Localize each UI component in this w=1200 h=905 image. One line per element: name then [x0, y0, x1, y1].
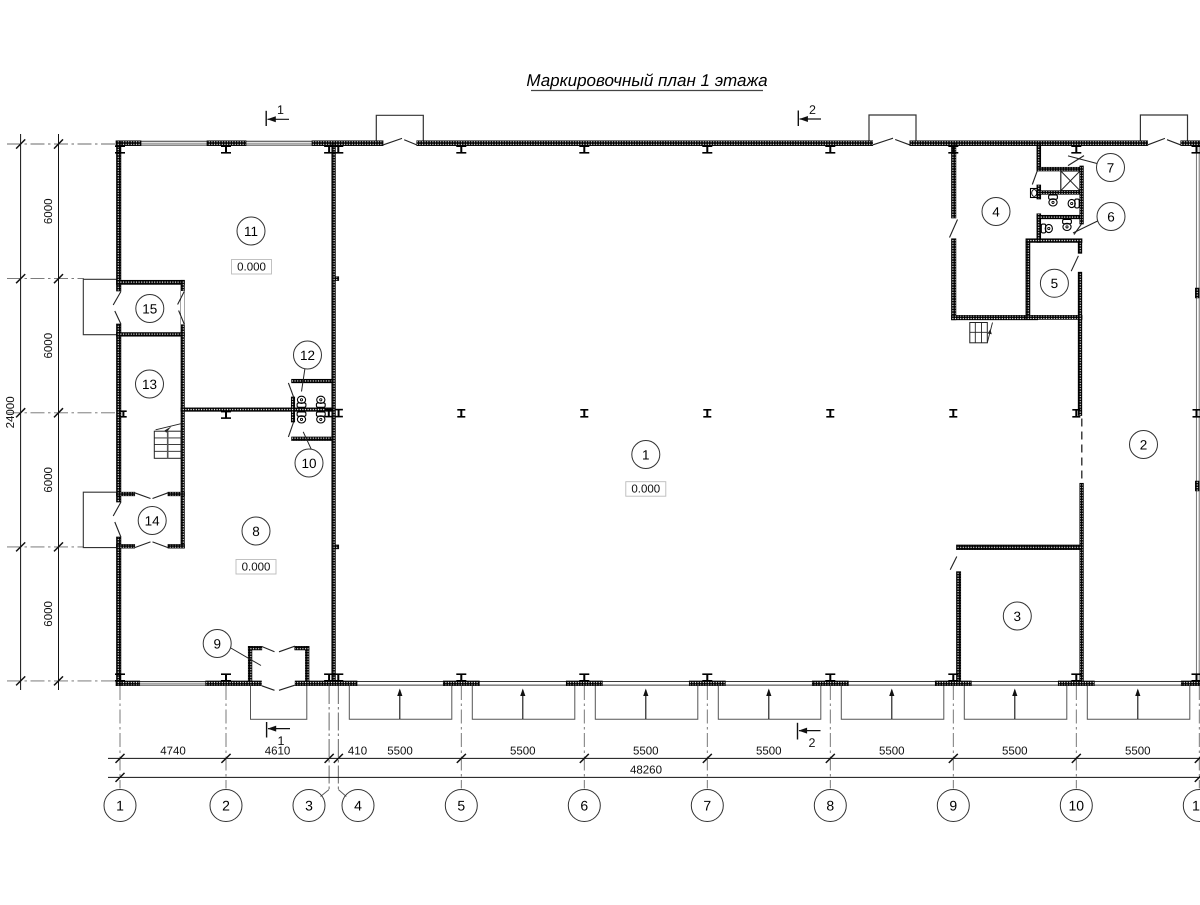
svg-text:5500: 5500 [510, 746, 536, 758]
svg-text:14: 14 [145, 513, 161, 528]
svg-text:7: 7 [1107, 160, 1115, 175]
svg-text:10: 10 [1069, 798, 1085, 814]
svg-text:6000: 6000 [43, 467, 55, 493]
svg-text:0.000: 0.000 [242, 562, 271, 574]
svg-text:2: 2 [1140, 437, 1148, 452]
svg-text:5: 5 [1051, 276, 1059, 291]
svg-text:7: 7 [703, 798, 711, 814]
svg-text:1: 1 [642, 447, 650, 462]
svg-text:10: 10 [301, 456, 316, 471]
svg-text:9: 9 [949, 798, 957, 814]
svg-text:6000: 6000 [43, 199, 55, 225]
svg-text:6: 6 [1107, 209, 1115, 224]
svg-text:5500: 5500 [879, 746, 905, 758]
svg-text:Маркировочный план 1 этажа: Маркировочный план 1 этажа [526, 71, 767, 90]
svg-text:8: 8 [252, 524, 260, 539]
svg-text:1: 1 [277, 103, 284, 117]
svg-text:9: 9 [213, 636, 221, 651]
svg-text:3: 3 [1014, 609, 1022, 624]
svg-text:2: 2 [222, 798, 230, 814]
svg-text:4740: 4740 [160, 746, 186, 758]
svg-text:5: 5 [457, 798, 465, 814]
svg-text:24000: 24000 [5, 396, 17, 428]
svg-text:48260: 48260 [630, 765, 662, 777]
svg-text:1: 1 [116, 798, 124, 814]
svg-text:4: 4 [354, 798, 362, 814]
svg-text:5500: 5500 [756, 746, 782, 758]
svg-text:2: 2 [809, 736, 816, 750]
svg-text:13: 13 [142, 377, 157, 392]
svg-text:410: 410 [348, 746, 367, 758]
svg-text:3: 3 [305, 798, 313, 814]
svg-text:5500: 5500 [633, 746, 659, 758]
svg-text:2: 2 [809, 103, 816, 117]
svg-text:11: 11 [244, 224, 258, 239]
svg-text:0.000: 0.000 [237, 262, 266, 274]
svg-text:5500: 5500 [1125, 746, 1151, 758]
svg-text:8: 8 [826, 798, 834, 814]
svg-text:6: 6 [580, 798, 588, 814]
svg-text:12: 12 [300, 348, 315, 363]
svg-text:5500: 5500 [1002, 746, 1028, 758]
svg-text:4: 4 [992, 204, 1000, 219]
svg-text:11: 11 [1192, 798, 1200, 814]
svg-text:6000: 6000 [43, 333, 55, 359]
svg-text:0.000: 0.000 [631, 484, 660, 496]
svg-text:6000: 6000 [43, 601, 55, 627]
svg-text:5500: 5500 [387, 746, 413, 758]
svg-text:1: 1 [278, 734, 285, 748]
svg-text:15: 15 [142, 301, 157, 316]
